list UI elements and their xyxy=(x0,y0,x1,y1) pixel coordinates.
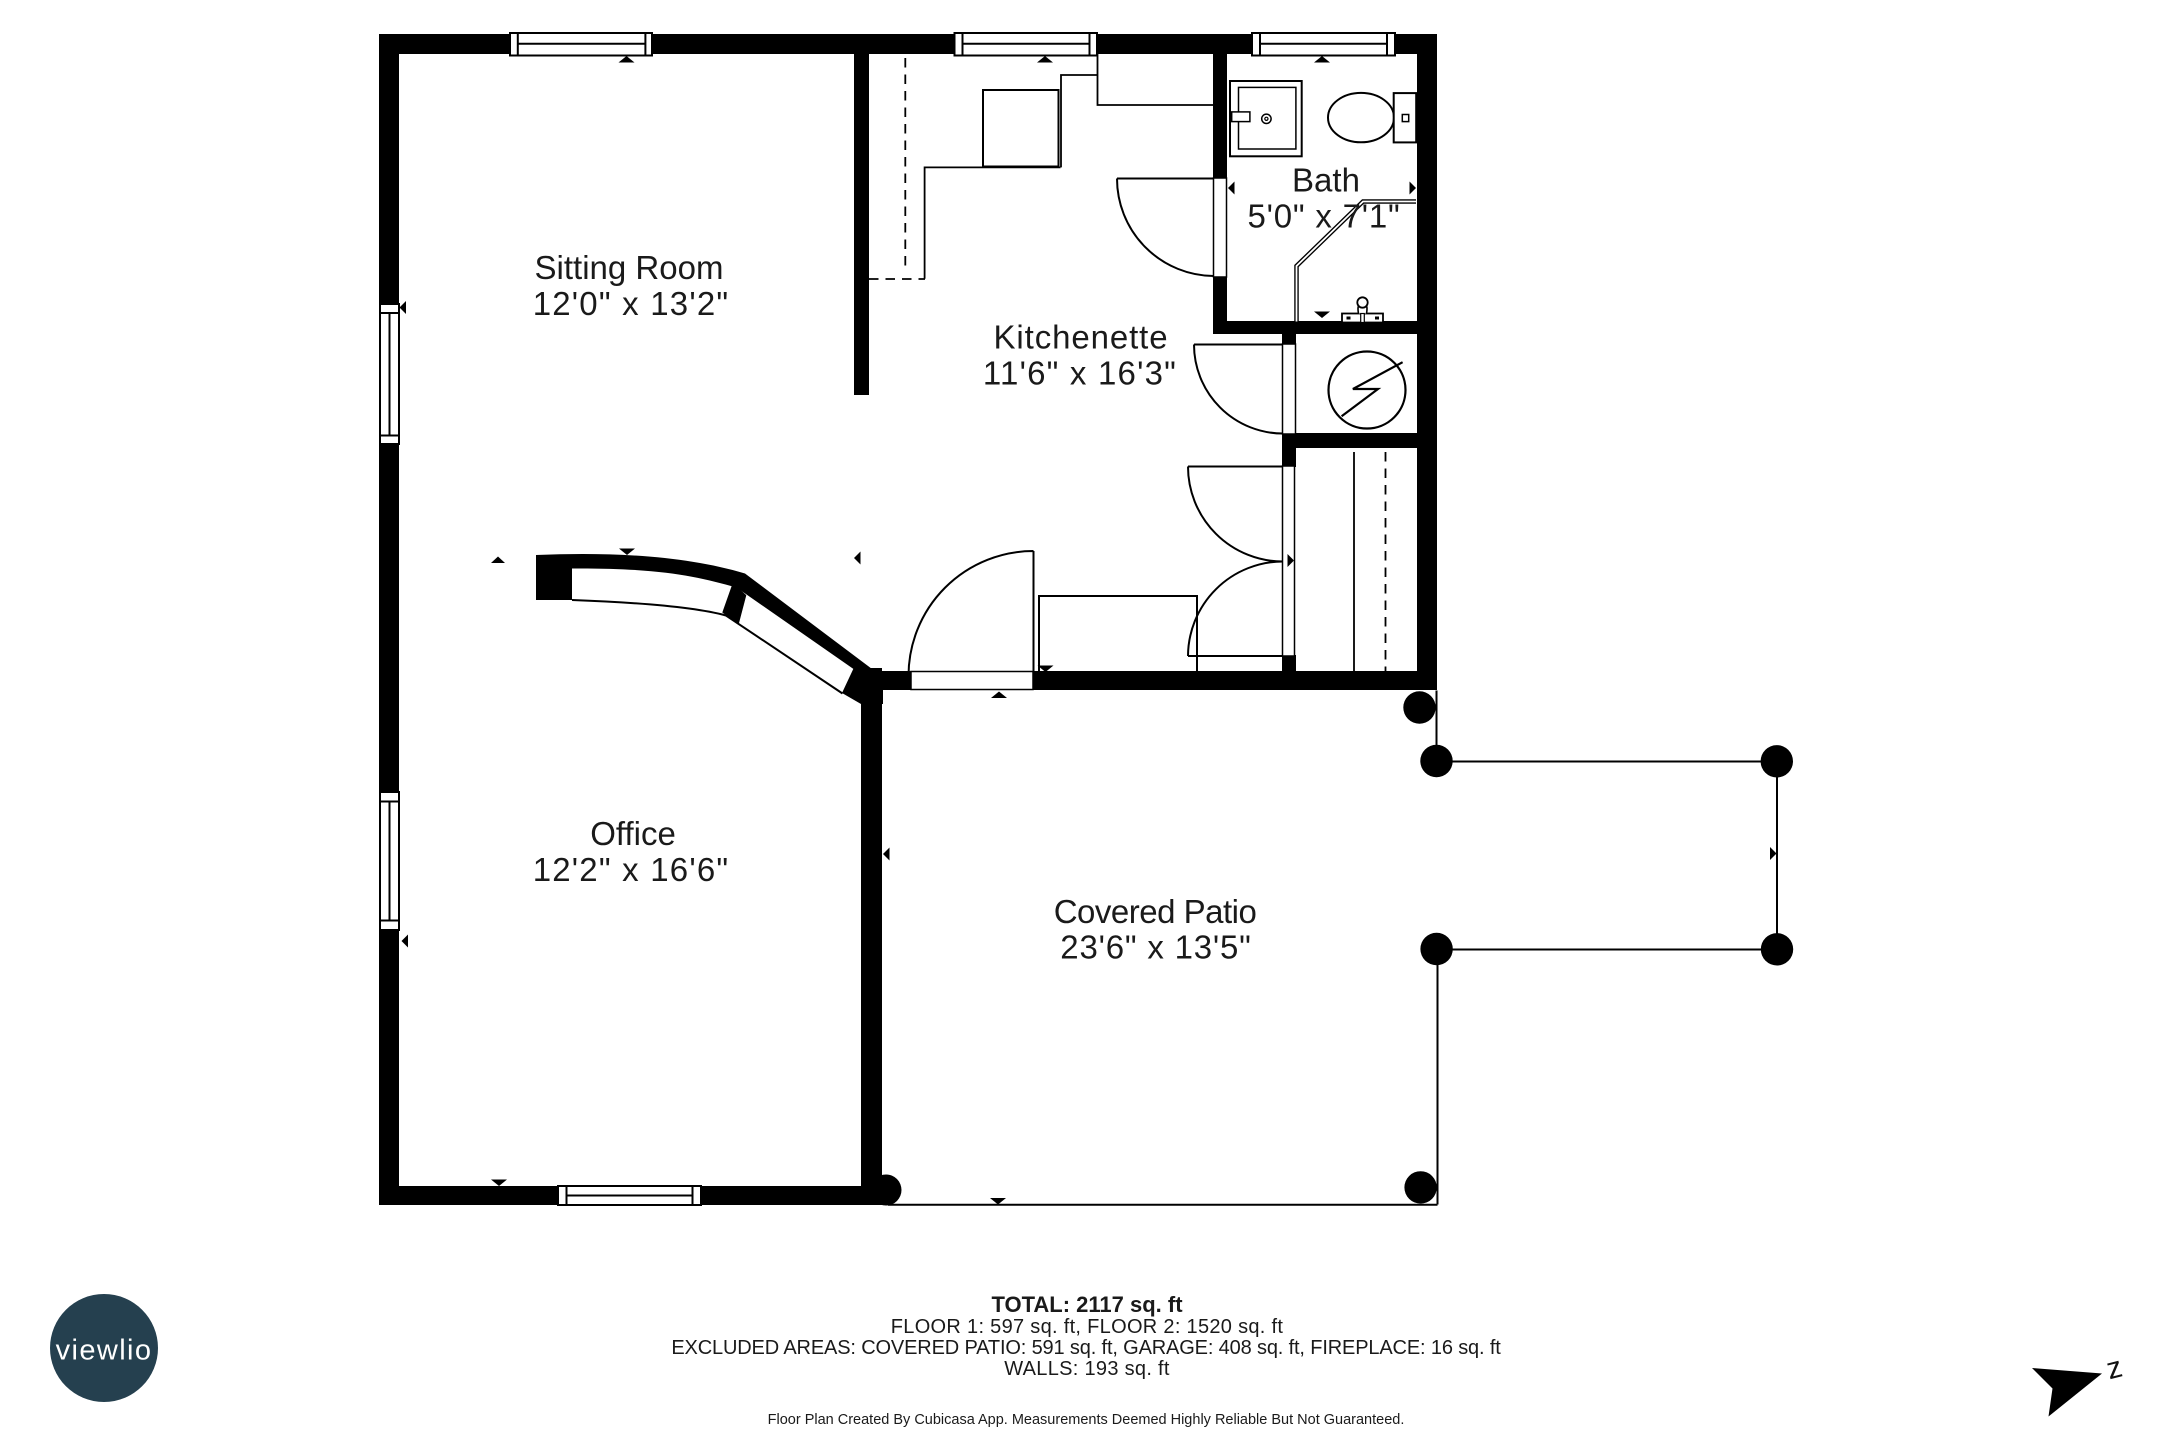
svg-text:5'0" x 7'1": 5'0" x 7'1" xyxy=(1247,198,1400,235)
svg-text:WALLS: 193 sq. ft: WALLS: 193 sq. ft xyxy=(1004,1358,1170,1380)
svg-text:Floor Plan Created By Cubicasa: Floor Plan Created By Cubicasa App. Meas… xyxy=(768,1412,1405,1428)
svg-text:Covered Patio: Covered Patio xyxy=(1054,893,1257,930)
svg-text:11'6" x 16'3": 11'6" x 16'3" xyxy=(983,355,1177,392)
svg-text:23'6" x 13'5": 23'6" x 13'5" xyxy=(1060,929,1251,966)
svg-text:Office: Office xyxy=(590,815,676,852)
svg-text:viewlio: viewlio xyxy=(56,1335,153,1367)
svg-text:Bath: Bath xyxy=(1292,162,1360,199)
svg-text:Kitchenette: Kitchenette xyxy=(993,319,1168,356)
svg-text:12'0" x 13'2": 12'0" x 13'2" xyxy=(533,285,730,322)
svg-text:EXCLUDED AREAS: COVERED PATIO:: EXCLUDED AREAS: COVERED PATIO: 591 sq. f… xyxy=(671,1337,1501,1359)
svg-text:TOTAL: 2117 sq. ft: TOTAL: 2117 sq. ft xyxy=(991,1292,1183,1317)
svg-text:Sitting Room: Sitting Room xyxy=(535,249,724,286)
svg-text:12'2" x 16'6": 12'2" x 16'6" xyxy=(533,851,730,888)
svg-text:FLOOR 1: 597 sq. ft, FLOOR 2:: FLOOR 1: 597 sq. ft, FLOOR 2: 1520 sq. f… xyxy=(891,1316,1284,1338)
